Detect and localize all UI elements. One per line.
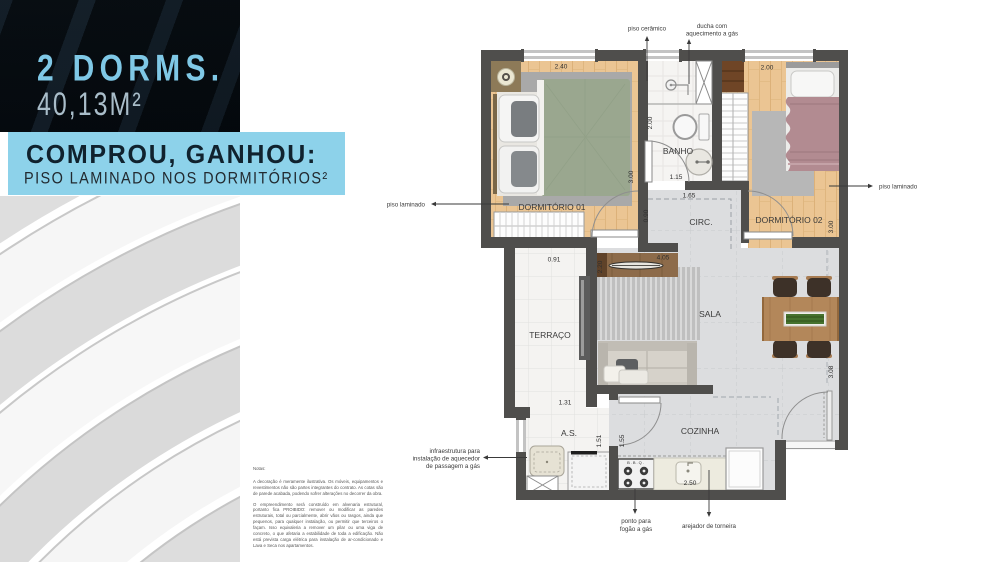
svg-text:1.65: 1.65 <box>683 193 696 200</box>
svg-text:piso laminado: piso laminado <box>879 184 918 191</box>
svg-text:3.00: 3.00 <box>828 220 835 233</box>
svg-text:ducha com: ducha com <box>697 23 727 30</box>
svg-text:1.55: 1.55 <box>619 434 626 447</box>
svg-text:2.50: 2.50 <box>684 480 697 487</box>
svg-text:A.S.: A.S. <box>561 428 577 438</box>
svg-text:3.08: 3.08 <box>828 365 835 378</box>
svg-text:2.20: 2.20 <box>597 260 604 273</box>
svg-text:1.51: 1.51 <box>596 434 603 447</box>
svg-text:piso laminado: piso laminado <box>387 202 426 209</box>
svg-text:3.00: 3.00 <box>628 170 635 183</box>
svg-text:2.00: 2.00 <box>647 116 654 129</box>
svg-text:DORMITÓRIO 01: DORMITÓRIO 01 <box>518 202 585 212</box>
svg-text:infraestrutura para: infraestrutura para <box>429 448 480 455</box>
svg-text:piso cerâmico: piso cerâmico <box>628 26 667 33</box>
svg-text:2.40: 2.40 <box>555 64 568 71</box>
svg-text:de passagem a gás: de passagem a gás <box>426 463 480 470</box>
svg-text:2.00: 2.00 <box>761 65 774 72</box>
svg-text:COZINHA: COZINHA <box>681 426 720 436</box>
svg-text:fogão a gás: fogão a gás <box>620 526 652 533</box>
svg-text:SALA: SALA <box>699 309 721 319</box>
svg-text:DORMITÓRIO 02: DORMITÓRIO 02 <box>755 215 822 225</box>
svg-text:TERRAÇO: TERRAÇO <box>529 330 571 340</box>
svg-text:B.B.Q.: B.B.Q. <box>627 460 645 465</box>
svg-text:1.15: 1.15 <box>670 174 683 181</box>
svg-text:0.91: 0.91 <box>548 257 561 264</box>
svg-text:0.90: 0.90 <box>643 209 650 222</box>
svg-text:4.05: 4.05 <box>657 255 670 262</box>
svg-text:ponto para: ponto para <box>621 518 651 525</box>
svg-text:instalação de aquecedor: instalação de aquecedor <box>413 456 480 463</box>
svg-text:CIRC.: CIRC. <box>689 217 712 227</box>
svg-text:1.31: 1.31 <box>559 400 572 407</box>
svg-text:arejador de torneira: arejador de torneira <box>682 523 737 530</box>
svg-text:aquecimento a gás: aquecimento a gás <box>686 31 738 38</box>
svg-text:BANHO: BANHO <box>663 146 694 156</box>
